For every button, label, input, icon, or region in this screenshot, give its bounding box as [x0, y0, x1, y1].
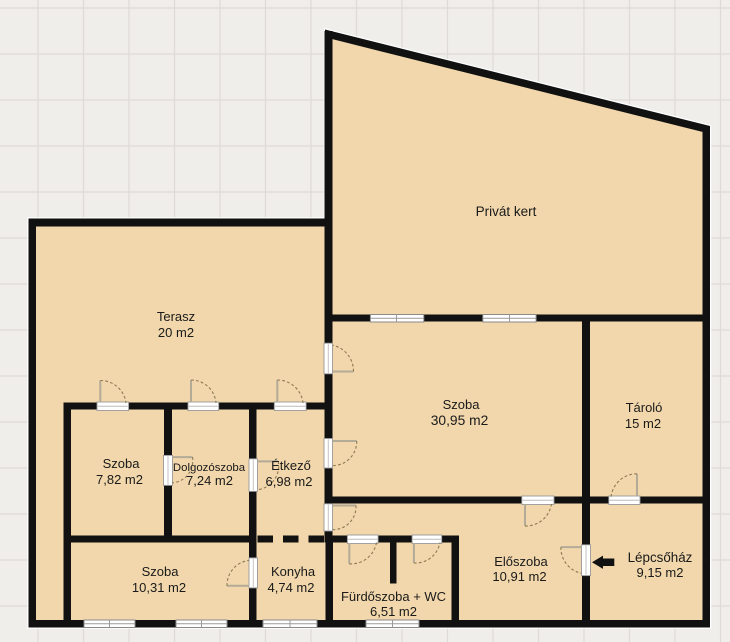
svg-text:7,24 m2: 7,24 m2 — [186, 473, 233, 488]
svg-text:4,74 m2: 4,74 m2 — [268, 580, 315, 595]
svg-text:Konyha: Konyha — [271, 564, 316, 579]
svg-text:15 m2: 15 m2 — [625, 416, 661, 431]
svg-text:Fürdőszoba + WC: Fürdőszoba + WC — [341, 589, 446, 604]
svg-text:Szoba: Szoba — [142, 564, 180, 579]
svg-text:Lépcsőház: Lépcsőház — [628, 550, 693, 565]
svg-text:30,95 m2: 30,95 m2 — [431, 413, 489, 428]
svg-text:Terasz: Terasz — [157, 309, 195, 324]
svg-text:Szoba: Szoba — [443, 397, 481, 412]
svg-text:6,51 m2: 6,51 m2 — [370, 604, 417, 619]
svg-text:Előszoba: Előszoba — [494, 554, 548, 569]
svg-text:7,82 m2: 7,82 m2 — [96, 472, 143, 487]
svg-text:Privát kert: Privát kert — [476, 204, 537, 219]
svg-text:6,98 m2: 6,98 m2 — [266, 474, 313, 489]
svg-text:10,91 m2: 10,91 m2 — [492, 569, 546, 584]
svg-text:Szoba: Szoba — [103, 456, 141, 471]
svg-text:Étkező: Étkező — [271, 458, 311, 473]
svg-text:20 m2: 20 m2 — [158, 325, 194, 340]
svg-text:10,31 m2: 10,31 m2 — [132, 580, 186, 595]
svg-text:9,15 m2: 9,15 m2 — [637, 565, 684, 580]
svg-text:Tároló: Tároló — [626, 400, 663, 415]
